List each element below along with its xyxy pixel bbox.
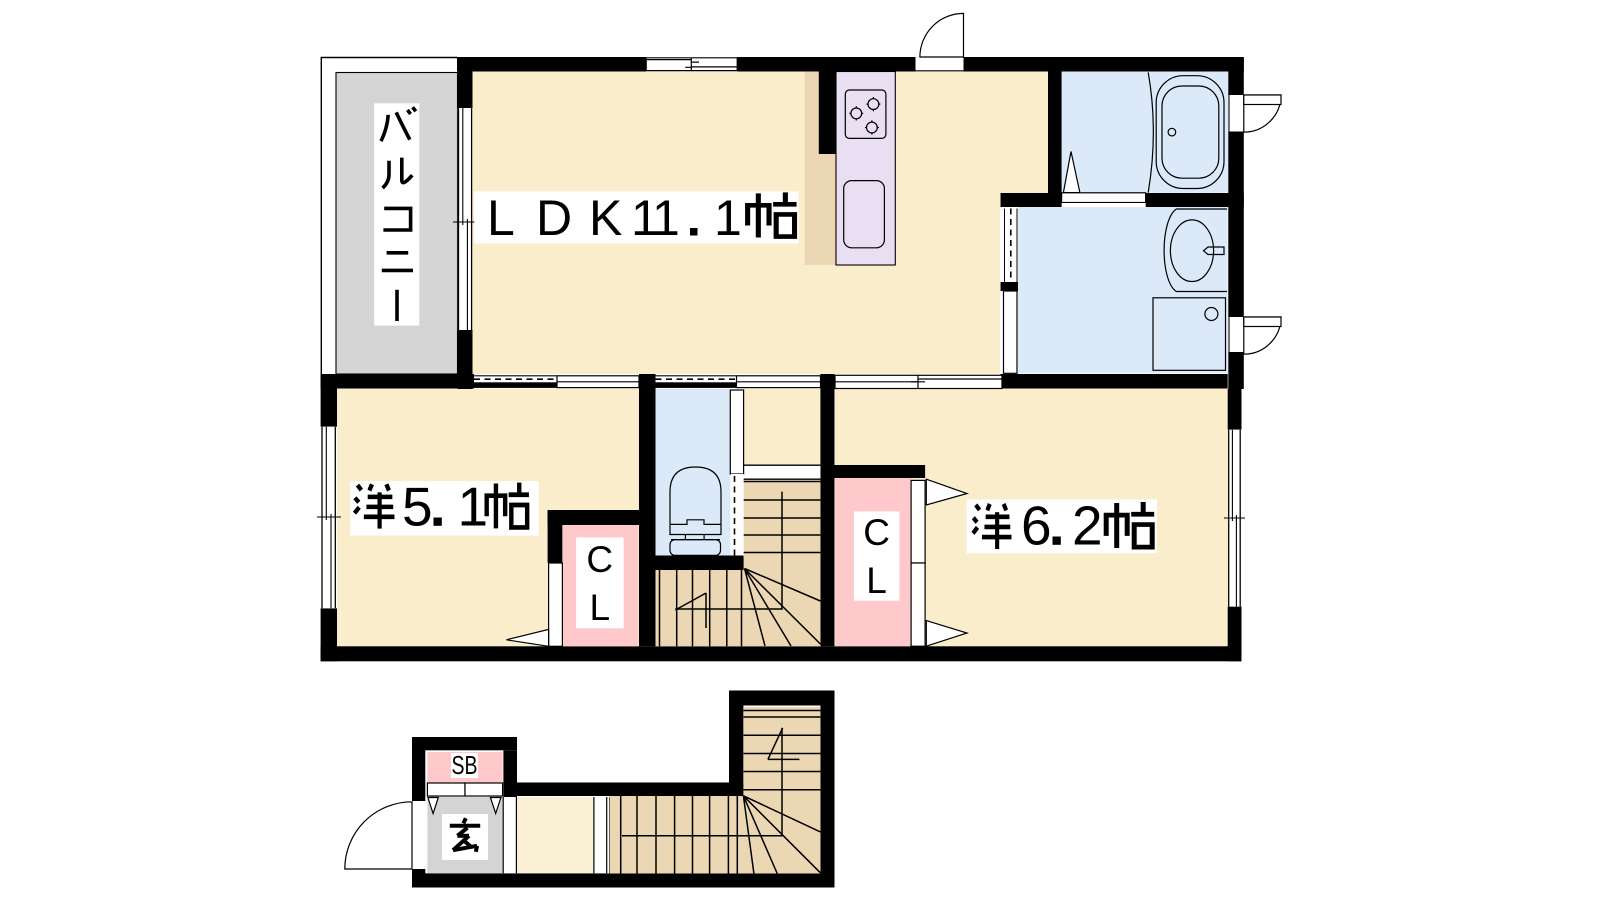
svg-text:C: C (863, 512, 890, 553)
svg-text:C: C (586, 539, 613, 580)
svg-text:1: 1 (714, 190, 742, 246)
svg-text:K: K (589, 190, 622, 246)
svg-text:6: 6 (1021, 495, 1052, 557)
svg-text:1: 1 (458, 476, 489, 538)
svg-text:D: D (536, 190, 572, 246)
svg-text:5: 5 (402, 476, 433, 538)
svg-text:SB: SB (452, 750, 478, 780)
svg-text:L: L (590, 587, 611, 628)
svg-text:L: L (487, 190, 515, 246)
svg-text:1: 1 (652, 190, 680, 246)
svg-text:2: 2 (1072, 495, 1103, 557)
svg-text:L: L (866, 560, 887, 601)
